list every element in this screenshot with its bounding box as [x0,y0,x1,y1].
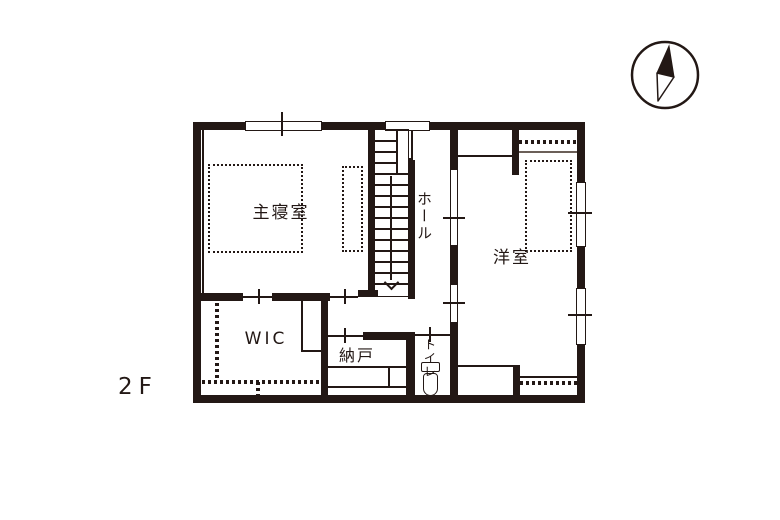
opening-toilet-door [415,334,452,336]
door-tick [443,217,465,219]
stair-tread [375,151,396,153]
window-mullion-tick [281,112,283,136]
stair-upper-flight-edge [409,158,413,160]
outer-wall-right-a [577,130,585,182]
closet-top-shelf-line [519,151,577,153]
wic-hanger-pipe-horizontal [202,380,321,384]
stair-tread [375,184,408,186]
floor-plan-canvas: 主寝室 洋室 WIC 納戸 ホール トイレ 2F [0,0,780,520]
wic-hanger-pipe-stub [256,382,260,396]
label-storage: 納戸 [307,347,407,365]
outer-wall-left [193,122,201,403]
stair-tread [375,162,396,164]
wall-bedroom-south-a [201,293,243,301]
stair-rail-line [396,131,398,175]
wall-closet-stub-bottom [513,365,520,395]
outer-wall-right-b [577,247,585,288]
closet-top-hanger-pipe [519,140,577,144]
stair-tread [375,239,408,241]
opening-tick [344,289,346,304]
closet-bottom-front-line [458,365,513,367]
label-toilet: トイレ [422,338,435,379]
stair-tread [375,206,408,208]
stair-tread [375,140,396,142]
window-right-upper [576,182,586,247]
outer-wall-right-c [577,345,585,395]
stair-tread [375,228,408,230]
closet-bottom-hanger-pipe [520,381,577,385]
master-bedroom-side-outline [342,166,363,252]
label-walk-in-closet: WIC [216,330,316,349]
wall-hall-east-a [450,130,458,170]
western-room-bed-outline [525,160,572,252]
window-right-lower [576,288,586,345]
stairs-direction-arrow-shaft [390,176,392,280]
opening-tick [258,289,260,304]
stair-tread [375,217,408,219]
stair-tread [375,250,408,252]
floor-label: 2F [118,374,158,400]
outer-wall-top-c [430,122,585,130]
outer-wall-bottom [193,395,585,403]
wall-storage-top [363,332,406,340]
window-mullion-tick [568,314,592,316]
door-tick [443,302,465,304]
stair-tread [375,272,408,274]
label-western-room: 洋室 [462,249,562,268]
wall-hall-east-b [450,245,458,285]
closet-bottom-shelf-line [520,376,577,378]
bedroom-west-inner-line [202,130,204,293]
wall-stairs-right [408,160,415,299]
window-top-master-bedroom [245,121,322,131]
wall-hall-east-c [450,322,458,395]
storage-shelf-line-1 [328,366,406,368]
stair-tread [375,195,408,197]
closet-top-front-line [456,155,512,157]
wall-closet-divider-top [512,130,519,175]
stair-upper-flight-edge [411,131,413,159]
wall-bedroom-south-b [272,293,330,301]
stair-tread [375,261,408,263]
label-master-bedroom: 主寝室 [231,204,331,223]
opening-tick [344,328,346,343]
storage-shelf-divider [388,367,390,387]
stair-tread [375,173,408,175]
door-western-room-upper [450,170,458,245]
storage-shelf-line-2 [328,386,406,388]
wall-toilet-left [406,332,415,395]
north-compass-icon [628,38,702,112]
label-hall: ホール [416,191,431,242]
